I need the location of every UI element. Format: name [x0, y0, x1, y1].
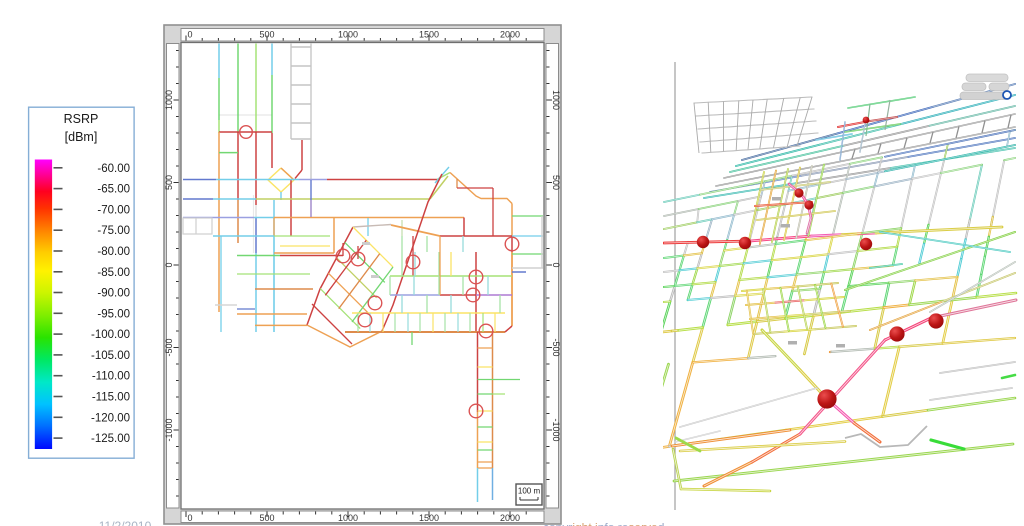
svg-text:-110.00: -110.00 [92, 371, 130, 383]
svg-text:-1000: -1000 [164, 418, 174, 441]
svg-text:100 m: 100 m [518, 487, 541, 496]
svg-text:-100.00: -100.00 [91, 329, 130, 341]
svg-text:0: 0 [551, 262, 561, 267]
svg-text:[dBm]: [dBm] [65, 130, 98, 144]
svg-text:2000: 2000 [500, 513, 520, 523]
svg-text:-85.00: -85.00 [97, 267, 130, 279]
svg-text:11/2/2010: 11/2/2010 [99, 519, 152, 526]
svg-text:1000: 1000 [164, 90, 174, 110]
svg-text:500: 500 [259, 513, 274, 523]
svg-text:copyright info reserved: copyright info reserved [543, 521, 664, 526]
svg-text:-90.00: -90.00 [97, 288, 130, 300]
svg-text:-75.00: -75.00 [97, 225, 130, 237]
svg-text:1500: 1500 [419, 30, 439, 40]
svg-text:-500: -500 [551, 338, 561, 356]
svg-text:RSRP: RSRP [64, 112, 99, 126]
svg-text:-125.00: -125.00 [91, 433, 130, 445]
svg-text:1000: 1000 [551, 90, 561, 110]
svg-text:1500: 1500 [419, 513, 439, 523]
svg-text:1000: 1000 [338, 513, 358, 523]
svg-text:2000: 2000 [500, 30, 520, 40]
svg-text:-80.00: -80.00 [97, 246, 130, 258]
svg-text:500: 500 [259, 30, 274, 40]
svg-text:500: 500 [551, 175, 561, 190]
svg-text:-95.00: -95.00 [97, 308, 130, 320]
svg-text:-70.00: -70.00 [97, 204, 130, 216]
svg-text:-120.00: -120.00 [91, 412, 130, 424]
svg-text:0: 0 [187, 513, 192, 523]
svg-text:500: 500 [164, 175, 174, 190]
svg-text:-500: -500 [164, 338, 174, 356]
svg-text:0: 0 [187, 30, 192, 40]
svg-text:1000: 1000 [338, 30, 358, 40]
svg-text:-60.00: -60.00 [97, 163, 130, 175]
svg-text:0: 0 [164, 262, 174, 267]
svg-text:-115.00: -115.00 [92, 392, 130, 404]
svg-text:-65.00: -65.00 [97, 184, 130, 196]
svg-text:-105.00: -105.00 [91, 350, 130, 362]
svg-text:-1000: -1000 [551, 418, 561, 441]
